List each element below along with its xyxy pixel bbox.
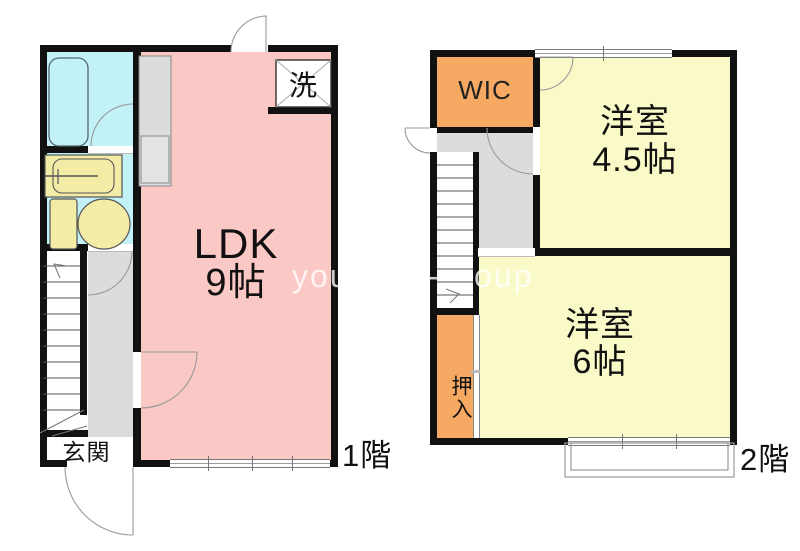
wall bbox=[533, 175, 540, 250]
wall bbox=[133, 408, 141, 467]
wall bbox=[535, 248, 737, 256]
wall bbox=[40, 430, 88, 437]
wall bbox=[40, 146, 88, 153]
wall bbox=[40, 45, 47, 467]
hallway-f2 bbox=[437, 133, 533, 152]
hallway-f1 bbox=[88, 245, 133, 437]
wic-label: WIC bbox=[437, 77, 533, 104]
wall bbox=[430, 50, 535, 57]
wall bbox=[80, 250, 87, 415]
wall bbox=[268, 107, 338, 114]
window-tick bbox=[252, 456, 253, 471]
wall bbox=[437, 308, 478, 315]
wall bbox=[430, 50, 437, 128]
hallway-f2 bbox=[478, 152, 533, 248]
bedroom-6-size: 6帖 bbox=[478, 345, 722, 381]
window bbox=[170, 459, 330, 468]
ldk-room-label: LDK bbox=[141, 222, 331, 266]
wall bbox=[133, 45, 141, 352]
laundry-label: 洗 bbox=[276, 71, 331, 100]
window-tick bbox=[676, 434, 677, 449]
floor1-label: 1階 bbox=[342, 440, 398, 473]
bedroom-4_5-size: 4.5帖 bbox=[540, 143, 730, 179]
wall bbox=[437, 127, 533, 133]
window-tick bbox=[603, 46, 604, 61]
wall bbox=[473, 152, 479, 315]
window-tick bbox=[292, 456, 293, 471]
floor-plan-canvas: LDK 9帖 玄関 洗 1階 bbox=[0, 0, 800, 551]
floor2-label: 2階 bbox=[740, 444, 798, 477]
ldk-room-size: 9帖 bbox=[141, 264, 331, 304]
stairs-f1-area bbox=[43, 250, 80, 437]
door-opening bbox=[88, 146, 133, 154]
door-opening bbox=[88, 244, 133, 252]
wall bbox=[533, 57, 540, 127]
door-opening bbox=[133, 352, 141, 408]
window-tick bbox=[622, 434, 623, 449]
bedroom-6-label: 洋室 bbox=[478, 308, 722, 344]
wall bbox=[268, 45, 338, 52]
passage-opening bbox=[478, 248, 535, 257]
entrance-label: 玄関 bbox=[40, 440, 133, 464]
balcony bbox=[565, 443, 734, 477]
window-tick bbox=[208, 456, 209, 471]
window bbox=[568, 437, 730, 446]
bedroom-4_5-label: 洋室 bbox=[540, 105, 730, 141]
wall bbox=[430, 152, 437, 445]
stairs-f2-area bbox=[437, 152, 473, 308]
wall bbox=[672, 50, 737, 57]
oshiire-label: 押入 bbox=[441, 352, 471, 444]
